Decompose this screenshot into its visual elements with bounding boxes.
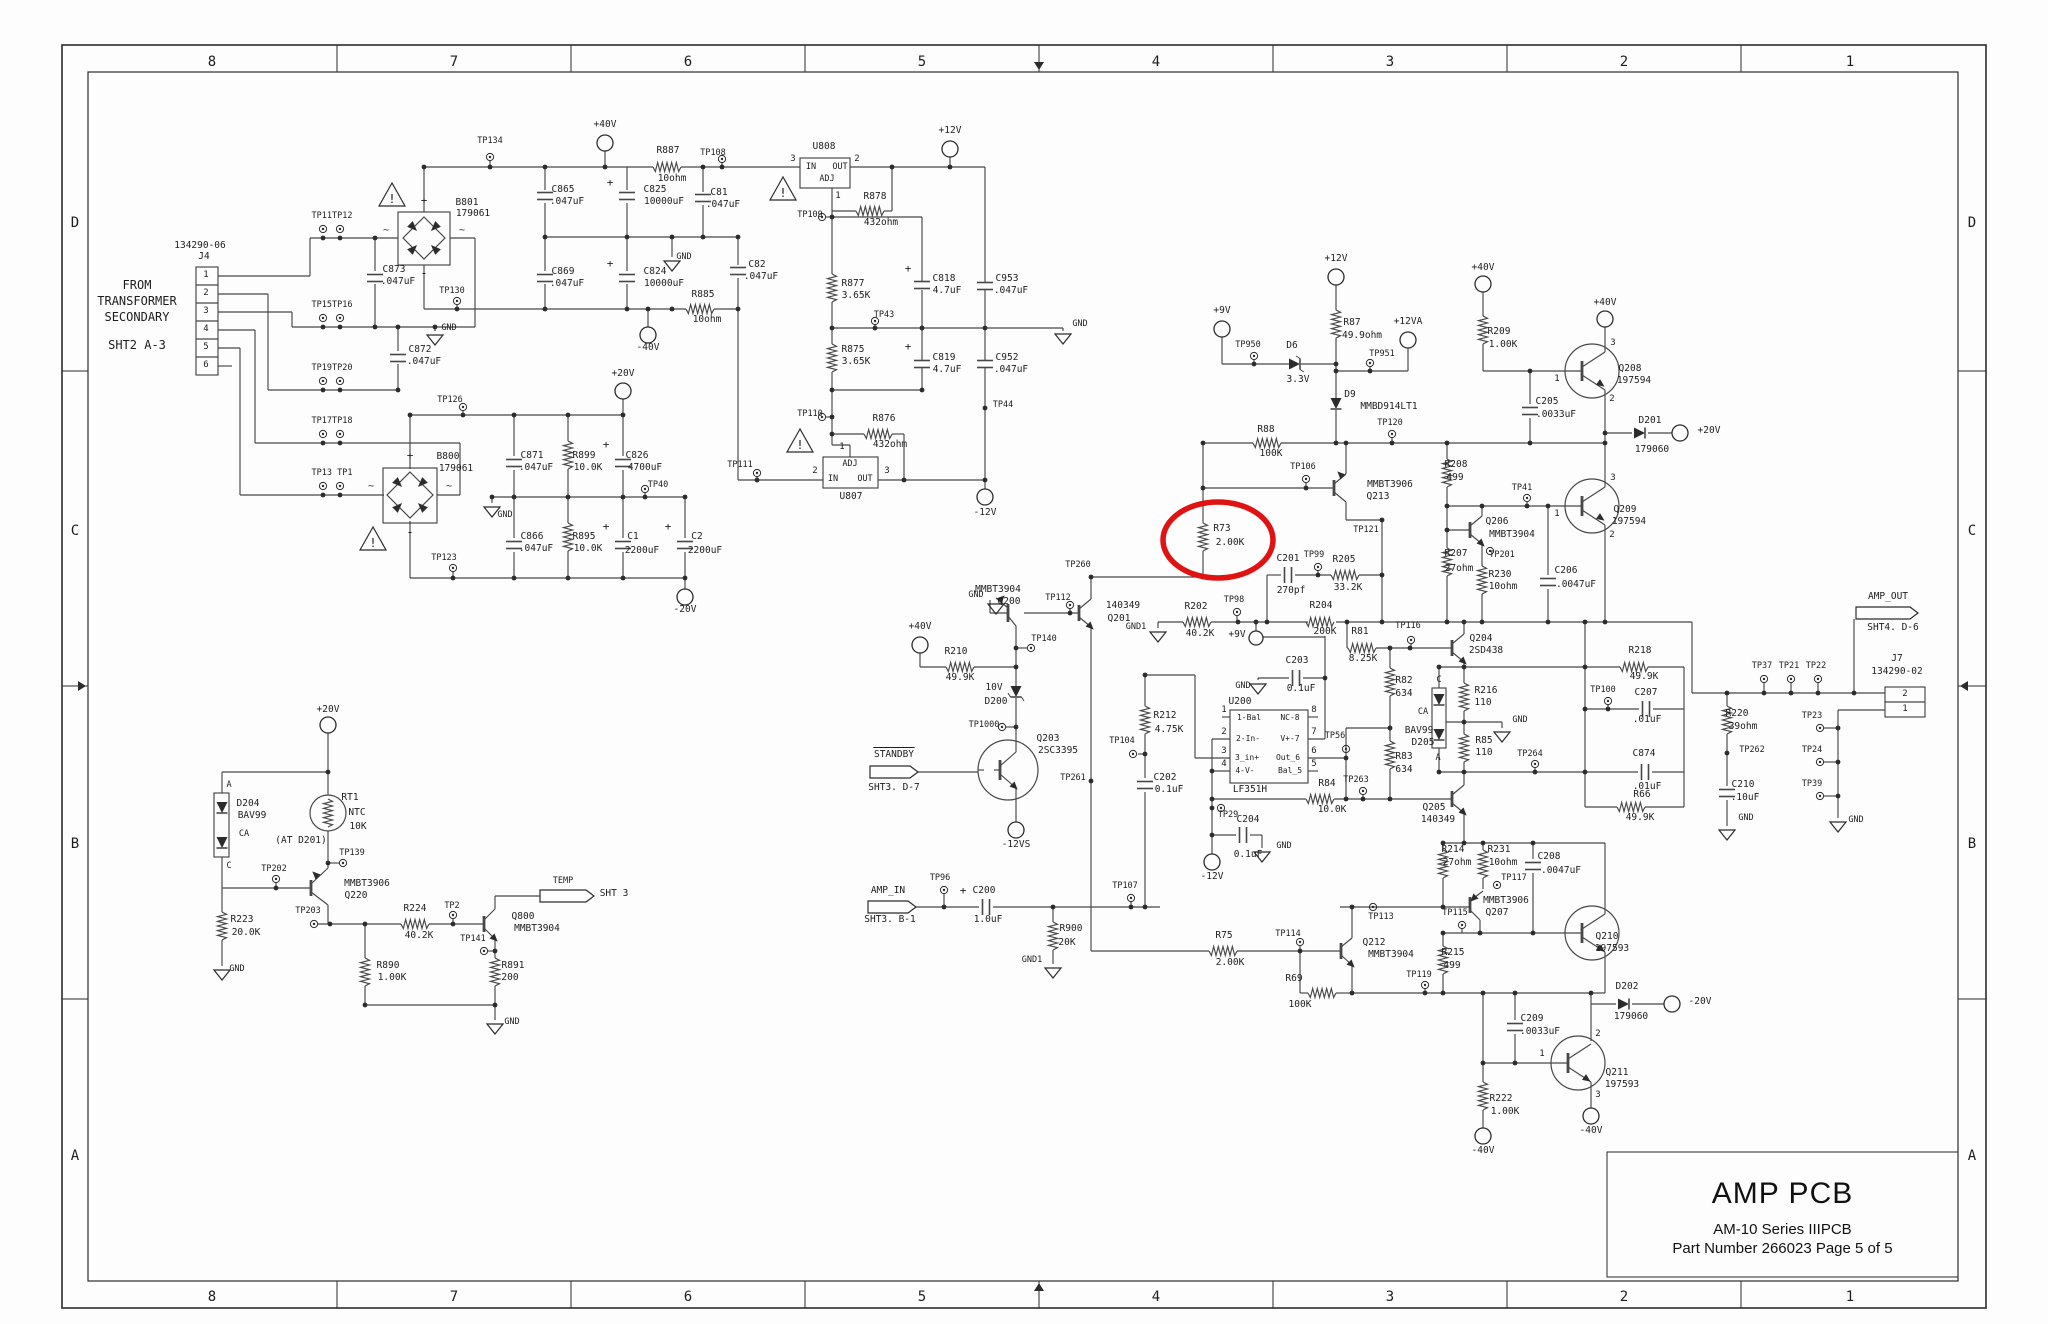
junction-dot [983, 478, 988, 483]
resistor-symbol [946, 663, 974, 672]
junction-dot [396, 325, 401, 330]
schematic-label: -12V [1201, 871, 1224, 882]
junction-dot [1441, 931, 1446, 936]
schematic-label: C206 [1555, 565, 1578, 576]
schematic-label: 2 [1595, 1029, 1600, 1039]
svg-text:6: 6 [684, 54, 692, 70]
schematic-label: 3 [1610, 338, 1615, 348]
schematic-label: C819 [933, 352, 956, 363]
schematic-label: R899 [573, 450, 596, 461]
schematic-label: 10K [349, 821, 366, 832]
junction-dot [321, 441, 326, 446]
junction-dot [1423, 991, 1428, 996]
schematic-label: 8.25K [1349, 653, 1378, 664]
schematic-label: TP112 [1045, 593, 1071, 603]
schematic-label: .047uF [407, 356, 442, 367]
junction-dot [701, 165, 706, 170]
schematic-label: TP106 [1290, 462, 1316, 472]
resistor-symbol [1460, 734, 1469, 762]
schematic-label: TP23 [1802, 711, 1822, 721]
test-points [272, 153, 1823, 988]
schematic-label: 499 [1446, 472, 1463, 483]
schematic-label: MMBT3904 [1489, 529, 1535, 540]
junction-dot [1068, 611, 1073, 616]
schematic-label: 4.75K [1155, 724, 1184, 735]
schematic-label: IN [828, 474, 838, 484]
schematic-label: C1 [627, 531, 639, 542]
schematic-label: C208 [1538, 851, 1561, 862]
schematic-label: 1.0uF [974, 914, 1003, 925]
svg-text:5: 5 [918, 54, 926, 70]
schematic-label: 39ohm [1729, 721, 1758, 732]
schematic-label: 49.9K [1626, 812, 1655, 823]
schematic-label: ~ [368, 481, 374, 492]
schematic-label: + [603, 520, 610, 533]
schematic-label: C824 [644, 266, 667, 277]
resistor-symbol [491, 958, 500, 986]
svg-text:6: 6 [684, 1289, 692, 1305]
schematic-label: 6 [203, 360, 208, 370]
schematic-label: R887 [657, 145, 680, 156]
junction-dot [338, 388, 343, 393]
junction-dot [1481, 991, 1486, 996]
junction-dot [1480, 504, 1485, 509]
schematic-label: TP117 [1501, 873, 1527, 883]
schematic-label: 3 [203, 306, 208, 316]
wire [1000, 752, 1016, 766]
resistor-symbol [1199, 523, 1208, 551]
junction-dot [948, 165, 953, 170]
schematic-label: MMBT3904 [514, 923, 560, 934]
schematic-label: + [607, 257, 614, 270]
schematic-label: TP114 [1275, 929, 1301, 939]
junction-dot [983, 326, 988, 331]
resistor-symbol [864, 430, 892, 439]
schematic-label: + [960, 884, 967, 897]
ground-icon [214, 970, 230, 980]
schematic-label: R895 [573, 531, 596, 542]
schematic-label: Q212 [1363, 937, 1386, 948]
diode-icon [1634, 428, 1645, 439]
junction-dot [1051, 905, 1056, 910]
drawing-title: AMP PCB [1712, 1177, 1854, 1211]
junction-dot [736, 235, 741, 240]
junction-dot [543, 235, 548, 240]
schematic-label: 197594 [1612, 516, 1647, 527]
schematic-label: GND [504, 1017, 519, 1027]
schematic-label: 100K [1260, 448, 1283, 459]
schematic-label: Q207 [1486, 907, 1509, 918]
schematic-label: C [226, 861, 231, 871]
junction-dot [736, 307, 741, 312]
schematic-label: GND [1512, 715, 1527, 725]
junction-dot [363, 1003, 368, 1008]
schematic-label: TEMP [553, 876, 573, 886]
schematic-label: +9V [1213, 305, 1230, 316]
junction-dot [1513, 1061, 1518, 1066]
schematic-label: 2 [1902, 689, 1907, 699]
schematic-label: 10.0K [574, 543, 603, 554]
junction-dot [512, 495, 517, 500]
junction-dot [625, 307, 630, 312]
component-box [398, 212, 450, 265]
schematic-label: 2 [1609, 530, 1614, 540]
junction-dot [1603, 431, 1608, 436]
diode-icon [217, 802, 228, 813]
schematic-label: +9V [1228, 629, 1245, 640]
junction-dot [321, 236, 326, 241]
schematic-label: C203 [1286, 655, 1309, 666]
junction-dot [1531, 841, 1536, 846]
schematic-label: FROM [123, 278, 152, 292]
junction-dot [1380, 620, 1385, 625]
junction-dot [1462, 770, 1467, 775]
svg-text:2: 2 [1620, 54, 1628, 70]
junction-dot [1589, 991, 1594, 996]
svg-text:C: C [1968, 523, 1976, 539]
junction-dot [1408, 646, 1413, 651]
schematic-label: 140349 [1106, 600, 1141, 611]
schematic-label: NTC [348, 807, 365, 818]
schematic-label: +40V [1594, 297, 1617, 308]
junction-dot [720, 165, 725, 170]
schematic-label: 110 [1475, 747, 1492, 758]
junction-dot [1252, 362, 1257, 367]
junction-dot [670, 235, 675, 240]
schematic-label: R208 [1445, 459, 1468, 470]
signal-flags [540, 607, 1918, 913]
schematic-label: TP56 [1325, 731, 1345, 741]
schematic-label: C952 [996, 352, 1019, 363]
junction-dot [1210, 806, 1215, 811]
schematic-label: OUT [857, 474, 872, 484]
schematic-label: TP110 [797, 409, 823, 419]
schematic-label: .0033uF [1536, 409, 1576, 420]
ground-icon [1055, 334, 1071, 344]
power-terminal [1249, 631, 1263, 645]
schematic-label: TP260 [1065, 560, 1091, 570]
schematic-label: 2200uF [688, 545, 723, 556]
schematic-label: TP119 [1406, 970, 1432, 980]
schematic-label: 179061 [456, 208, 491, 219]
schematic-label: STANDBY [874, 749, 914, 760]
schematic-label: R877 [842, 278, 865, 289]
power-terminal [1664, 996, 1680, 1012]
schematic-label: GND1 [1022, 955, 1042, 965]
junction-dot [1265, 620, 1270, 625]
junction-dot [408, 413, 413, 418]
schematic-label: 10000uF [644, 278, 684, 289]
schematic-label: Q200 [998, 596, 1021, 607]
schematic-label: IN [806, 162, 816, 172]
wire [1582, 914, 1605, 929]
schematic-label: .047uF [994, 364, 1029, 375]
junction-dot [1445, 504, 1450, 509]
svg-text:3: 3 [1386, 54, 1394, 70]
schematic-label: TP107 [1112, 881, 1138, 891]
schematic-label: .0033uF [1520, 1026, 1560, 1037]
junction-dot [873, 326, 878, 331]
junction-dot [830, 215, 835, 220]
resistor-symbol [1253, 439, 1281, 448]
svg-text:!: ! [796, 438, 803, 452]
junction-dot [1388, 726, 1393, 731]
junction-dot [1380, 573, 1385, 578]
schematic-label: GND [1276, 841, 1291, 851]
power-terminal [1475, 276, 1491, 292]
schematic-label: .10uF [1731, 792, 1760, 803]
schematic-label: R84 [1318, 778, 1335, 789]
ground-icon [487, 1024, 503, 1034]
junction-dot [1014, 665, 1019, 670]
junction-dot [920, 326, 925, 331]
schematic-label: -40V [637, 342, 660, 353]
power-terminal [1400, 332, 1416, 348]
schematic-label: ADJ [819, 174, 834, 184]
schematic-label: TP41 [1512, 483, 1532, 493]
diode-icon [217, 837, 228, 848]
schematic-label: 1 [1554, 374, 1559, 384]
junction-dot [643, 495, 648, 500]
junction-dot [1210, 797, 1215, 802]
resistor-symbol [1306, 795, 1334, 804]
schematic-label: -40V [1472, 1145, 1495, 1156]
junction-dot [1546, 504, 1551, 509]
junction-dot [512, 576, 517, 581]
schematic-label: TP19TP20 [312, 363, 353, 373]
schematic-label: MMBD914LT1 [1360, 401, 1417, 412]
schematic-label: + [905, 262, 912, 275]
schematic-label: C [1436, 675, 1441, 685]
resistor-symbol [218, 912, 227, 940]
schematic-label: OUT [832, 162, 847, 172]
ground-icon [1719, 830, 1735, 840]
schematic-label: 499 [1443, 960, 1460, 971]
schematic-label: 134290-02 [1871, 666, 1922, 677]
signal-flag [868, 901, 916, 913]
schematic-label: .047uF [519, 543, 554, 554]
schematic-label: 432ohm [864, 217, 899, 228]
schematic-label: SHT 3 [600, 888, 629, 899]
schematic-label: CA [239, 829, 249, 839]
power-terminal [320, 717, 336, 733]
schematic-label: TP21 [1779, 661, 1799, 671]
schematic-label: 634 [1395, 764, 1412, 775]
junction-dot [1437, 770, 1442, 775]
schematic-label: BAV99 [1405, 725, 1434, 736]
svg-text:1: 1 [1846, 1289, 1854, 1305]
diode-icon [1434, 729, 1445, 740]
schematic-label: R85 [1475, 735, 1492, 746]
junction-dot [942, 905, 947, 910]
schematic-label: R210 [945, 646, 968, 657]
schematic-label: 5 [203, 342, 208, 352]
schematic-label: C866 [521, 531, 544, 542]
junction-dot [451, 922, 456, 927]
schematic-label: R876 [873, 413, 896, 424]
schematic-label: R205 [1333, 554, 1356, 565]
schematic-label: MMBT3906 [1367, 479, 1413, 490]
schematic-label: D6 [1286, 340, 1298, 351]
resistor-symbol [1617, 803, 1645, 812]
schematic-label: TP29 [1218, 810, 1238, 820]
schematic-label: R73 [1213, 523, 1230, 534]
junction-dot [1528, 441, 1533, 446]
schematic-label: TP11TP12 [312, 211, 353, 221]
schematic-label: TP108 [700, 148, 726, 158]
schematic-label: TP139 [339, 848, 365, 858]
svg-text:8: 8 [208, 54, 216, 70]
junction-dot [1816, 691, 1821, 696]
junction-dot [890, 165, 895, 170]
junction-dot [1462, 620, 1467, 625]
schematic-label: 432ohm [873, 439, 908, 450]
junction-dot [1441, 991, 1446, 996]
schematic-label: 49.9ohm [1342, 330, 1382, 341]
junction-dot [1236, 620, 1241, 625]
bridge-rectifier-symbol [387, 472, 433, 518]
schematic-label: C205 [1536, 396, 1559, 407]
schematic-label: D202 [1616, 981, 1639, 992]
wire [1341, 938, 1352, 947]
schematic-label: + [905, 340, 912, 353]
schematic-label: C865 [552, 184, 575, 195]
junction-dot [1603, 441, 1608, 446]
schematic-label: GND [1235, 681, 1250, 691]
schematic-label: TRANSFORMER [97, 294, 177, 308]
schematic-label: (AT D201) [275, 835, 326, 846]
drawing-subtitle: AM-10 Series IIIPCB [1713, 1221, 1851, 1238]
schematic-label: 5 [1311, 759, 1316, 769]
schematic-label: Q210 [1596, 931, 1619, 942]
schematic-label: TP22 [1806, 661, 1826, 671]
bridge-rectifiers [387, 217, 445, 518]
junction-dot [1480, 620, 1485, 625]
schematic-label: -40V [1580, 1125, 1603, 1136]
junction-dot [493, 949, 498, 954]
schematic-label: 2.00K [1216, 957, 1245, 968]
resistors [218, 163, 1732, 1111]
schematic-label: C207 [1635, 687, 1658, 698]
junction-dot [338, 236, 343, 241]
schematic-label: 2200uF [625, 545, 660, 556]
schematic-label: C826 [626, 450, 649, 461]
schematic-label: + [603, 438, 610, 451]
schematic-label: Q213 [1367, 491, 1390, 502]
schematic-label: 2 [812, 466, 817, 476]
signal-flag [540, 890, 594, 902]
schematic-label: C818 [933, 273, 956, 284]
diode-icon [1289, 359, 1300, 370]
schematic-label: 197594 [1617, 375, 1652, 386]
schematic-label: 3 [1595, 1090, 1600, 1100]
schematic-label: C201 [1277, 553, 1300, 564]
junction-dot [1546, 620, 1551, 625]
schematic-label: 3 [884, 466, 889, 476]
schematic-label: MMBT3904 [975, 584, 1021, 595]
junction-dot [1437, 665, 1442, 670]
schematic-label: GND [441, 323, 456, 333]
schematic-canvas: 8877665544332211DDCCBBAA!!!!134290-06J4F… [0, 0, 2048, 1324]
schematic-label: R220 [1726, 708, 1749, 719]
schematic-label: TP39 [1802, 779, 1822, 789]
junction-dot [1445, 528, 1450, 533]
junction-dot [1350, 905, 1355, 910]
schematic-label: TP40 [648, 480, 668, 490]
schematic-label: R900 [1060, 923, 1083, 934]
schematic-label: TP123 [431, 553, 457, 563]
schematic-label: Q211 [1606, 1067, 1629, 1078]
schematic-label: C873 [383, 264, 406, 275]
title-block: AMP PCB AM-10 Series IIIPCB Part Number … [1609, 1158, 1956, 1275]
schematic-label: .047uF [994, 285, 1029, 296]
schematic-label: 179060 [1614, 1011, 1649, 1022]
schematic-label: -20V [674, 604, 697, 615]
schematic-label: TP115 [1442, 908, 1468, 918]
schematic-label: D200 [985, 696, 1008, 707]
junction-dot [488, 165, 493, 170]
schematic-label: TP130 [439, 286, 465, 296]
schematic-label: C825 [644, 184, 667, 195]
junction-dot [338, 493, 343, 498]
junction-dot [1390, 441, 1395, 446]
diode-icon [1618, 999, 1629, 1010]
schematic-label: TP202 [261, 864, 287, 874]
schematic-label: -12VS [1002, 839, 1031, 850]
junction-dot [1462, 665, 1467, 670]
schematic-label: 1-Bal [1237, 713, 1261, 722]
junction-dot [1334, 441, 1339, 446]
schematic-label: 1 [1902, 704, 1907, 714]
schematic-label: 3 [790, 154, 795, 164]
schematic-label: TP43 [874, 310, 894, 320]
junction-dot [1583, 770, 1588, 775]
power-terminal [1204, 854, 1220, 870]
resistor-symbol [828, 274, 837, 302]
svg-text:5: 5 [918, 1289, 926, 1305]
svg-text:!: ! [369, 536, 376, 550]
wire [1470, 516, 1482, 526]
schematic-label: TP141 [460, 934, 486, 944]
schematic-label: TP100 [1590, 685, 1616, 695]
junction-dot [1445, 620, 1450, 625]
junction-dot [621, 576, 626, 581]
schematic-label: 1.00K [1491, 1106, 1520, 1117]
schematic-label: Q205 [1423, 802, 1446, 813]
junction-dot [566, 576, 571, 581]
junction-dot [1334, 362, 1339, 367]
junction-dot [1344, 756, 1349, 761]
schematic-label: R83 [1395, 751, 1412, 762]
schematic-label: C210 [1732, 779, 1755, 790]
schematic-label: TP950 [1235, 340, 1261, 350]
schematic-label: Bal_5 [1278, 766, 1302, 775]
schematic-label: 6 [1311, 746, 1316, 756]
junction-dot [1298, 949, 1303, 954]
schematic-label: TP109 [797, 210, 823, 220]
schematic-label: 3.65K [842, 290, 871, 301]
schematic-label: Q209 [1614, 504, 1637, 515]
schematic-label: 8 [1311, 705, 1316, 715]
schematic-label: Out_6 [1276, 753, 1300, 762]
schematic-label: GND [229, 964, 244, 974]
schematic-label: D9 [1344, 389, 1356, 400]
svg-text:C: C [71, 523, 79, 539]
junction-dot [1380, 518, 1385, 523]
junction-dot [1143, 905, 1148, 910]
schematic-label: 40.2K [1186, 628, 1215, 639]
junction-dot [830, 326, 835, 331]
